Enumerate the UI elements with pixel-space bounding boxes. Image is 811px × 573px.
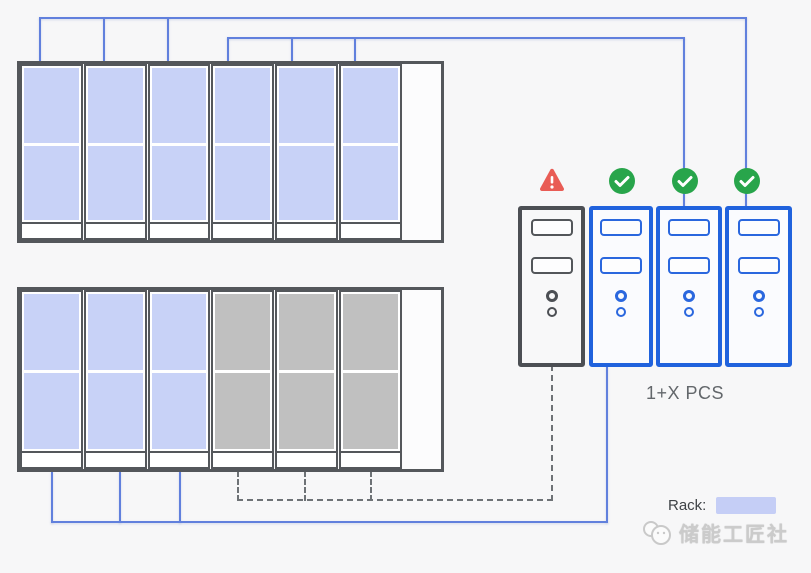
pcs-indicator xyxy=(616,307,626,317)
rack-cells xyxy=(341,66,400,222)
battery-cell xyxy=(343,68,398,143)
battery-cell xyxy=(152,294,207,370)
dashed-bus-drop-rack6 xyxy=(370,471,372,501)
rack-2-active xyxy=(84,64,147,240)
rack-tray xyxy=(213,224,272,238)
battery-cell xyxy=(279,373,334,449)
rack-tray xyxy=(213,453,272,467)
battery-cell xyxy=(24,294,79,370)
rack-cells xyxy=(341,292,400,451)
battery-cell xyxy=(24,146,79,221)
pcs-indicator xyxy=(546,290,558,302)
battery-cell xyxy=(215,294,270,370)
rack-2-active xyxy=(84,290,147,469)
pcs-indicator xyxy=(684,307,694,317)
dc-bus-top1-drop-rack1 xyxy=(39,17,41,63)
rack-legend: Rack: xyxy=(668,497,776,514)
rack-cells xyxy=(150,292,209,451)
rack-tray xyxy=(22,224,81,238)
pcs-unit-2-ok xyxy=(589,206,653,367)
pcs-unit-1-fault xyxy=(518,206,585,367)
rack-tray xyxy=(150,453,209,467)
watermark-text: 储能工匠社 xyxy=(679,518,789,547)
rack-tray xyxy=(341,453,400,467)
rack-tray xyxy=(22,453,81,467)
mascot-logo-icon xyxy=(641,519,673,547)
pcs-slot xyxy=(668,219,710,236)
rack-1-active xyxy=(20,290,83,469)
battery-cell xyxy=(279,68,334,143)
rack-cells xyxy=(213,292,272,451)
dc-bus-top2-drop-rack6 xyxy=(354,37,356,63)
pcs-slot xyxy=(600,257,642,274)
dc-bus-top2-horizontal xyxy=(227,37,685,39)
dc-bus-bottom-drop-rack3 xyxy=(179,471,181,523)
dc-bus-bottom-riser-pcs2 xyxy=(606,365,608,523)
battery-cell xyxy=(24,373,79,449)
dashed-bus-drop-rack5 xyxy=(304,471,306,501)
battery-cell xyxy=(88,294,143,370)
check-icon xyxy=(733,167,761,195)
dashed-bus-drop-rack4 xyxy=(237,471,239,501)
battery-cell xyxy=(152,68,207,143)
battery-cell xyxy=(343,294,398,370)
rack-cells xyxy=(150,66,209,222)
pcs-group-label: 1+X PCS xyxy=(646,383,724,404)
rack-1-active xyxy=(20,64,83,240)
dashed-bus-riser-pcs1 xyxy=(551,365,553,501)
pcs-slot xyxy=(738,257,780,274)
battery-cell xyxy=(343,373,398,449)
rack-tray xyxy=(277,453,336,467)
battery-cabinet-top xyxy=(17,61,444,243)
rack-tray xyxy=(277,224,336,238)
check-icon xyxy=(608,167,636,195)
battery-cell xyxy=(88,373,143,449)
watermark: 储能工匠社 xyxy=(641,518,789,547)
battery-cell xyxy=(152,146,207,221)
pcs-slot xyxy=(738,219,780,236)
dc-bus-top1-drop-rack2 xyxy=(103,17,105,63)
dc-bus-top1-drop-rack3 xyxy=(167,17,169,63)
dc-bus-top2-drop-rack5 xyxy=(291,37,293,63)
battery-cell xyxy=(88,68,143,143)
rack-cells xyxy=(213,66,272,222)
dc-bus-top1-horizontal xyxy=(39,17,747,19)
rack-cells xyxy=(22,66,81,222)
battery-cell xyxy=(279,294,334,370)
pcs-unit-4-ok xyxy=(725,206,792,367)
rack-5-active xyxy=(275,64,338,240)
check-icon xyxy=(671,167,699,195)
rack-tray xyxy=(150,224,209,238)
dc-bus-bottom-drop-rack1 xyxy=(51,471,53,523)
pcs-slot xyxy=(600,219,642,236)
rack-4-inactive xyxy=(211,290,274,469)
battery-cell xyxy=(88,146,143,221)
battery-cell xyxy=(215,373,270,449)
rack-6-active xyxy=(339,64,402,240)
pcs-indicator xyxy=(754,307,764,317)
rack-tray xyxy=(341,224,400,238)
warning-icon xyxy=(538,167,566,195)
rack-legend-label: Rack: xyxy=(668,497,706,514)
pcs-indicator xyxy=(615,290,627,302)
dc-bus-bottom-drop-rack2 xyxy=(119,471,121,523)
rack-cells xyxy=(86,66,145,222)
rack-cells xyxy=(22,292,81,451)
pcs-slot xyxy=(531,219,573,236)
dc-bus-bottom-horizontal xyxy=(51,521,608,523)
battery-cell xyxy=(279,146,334,221)
pcs-unit-3-ok xyxy=(656,206,722,367)
pcs-slot xyxy=(668,257,710,274)
battery-cabinet-bottom xyxy=(17,287,444,472)
rack-5-inactive xyxy=(275,290,338,469)
dc-bus-top2-drop-rack4 xyxy=(227,37,229,63)
rack-6-inactive xyxy=(339,290,402,469)
battery-cell xyxy=(152,373,207,449)
rack-3-active xyxy=(148,290,211,469)
pcs-indicator xyxy=(547,307,557,317)
pcs-slot xyxy=(531,257,573,274)
battery-cell xyxy=(215,68,270,143)
pcs-indicator xyxy=(683,290,695,302)
rack-tray xyxy=(86,453,145,467)
rack-cells xyxy=(277,292,336,451)
dashed-bus-horizontal xyxy=(237,499,553,501)
pcs-indicator xyxy=(753,290,765,302)
diagram-stage: 1+X PCS Rack: 储能工匠社 xyxy=(0,0,811,573)
rack-4-active xyxy=(211,64,274,240)
cabinet-empty-bay xyxy=(403,290,441,469)
battery-cell xyxy=(24,68,79,143)
rack-tray xyxy=(86,224,145,238)
rack-cells xyxy=(277,66,336,222)
battery-cell xyxy=(215,146,270,221)
battery-cell xyxy=(343,146,398,221)
rack-cells xyxy=(86,292,145,451)
rack-3-active xyxy=(148,64,211,240)
cabinet-empty-bay xyxy=(403,64,441,240)
rack-legend-swatch xyxy=(716,497,776,514)
